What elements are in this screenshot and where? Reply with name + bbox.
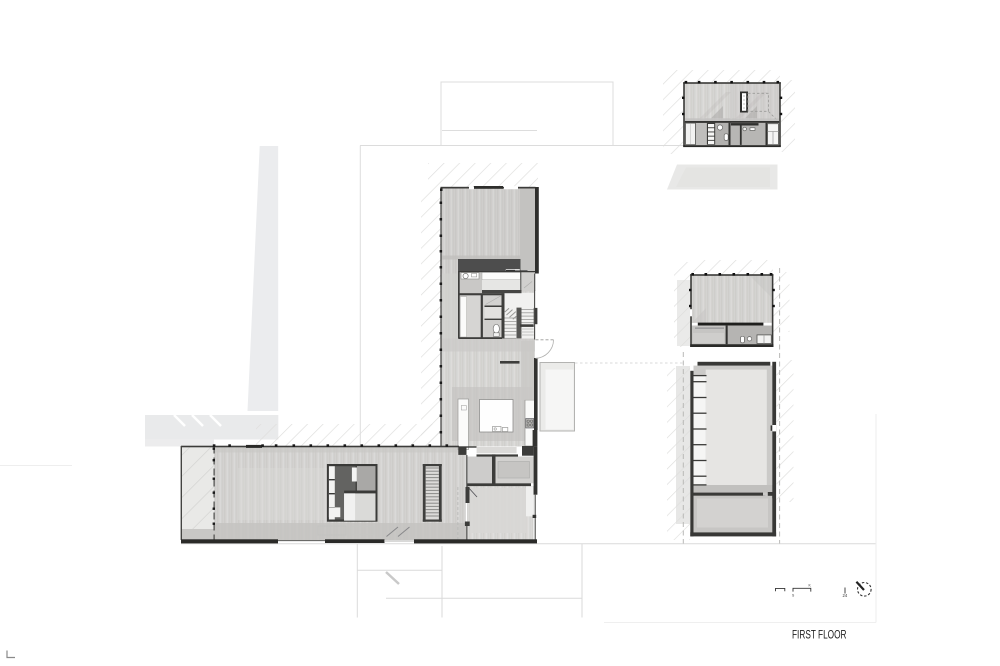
svg-text:FIRST FLOOR: FIRST FLOOR <box>792 627 847 641</box>
svg-text:24: 24 <box>843 593 848 598</box>
